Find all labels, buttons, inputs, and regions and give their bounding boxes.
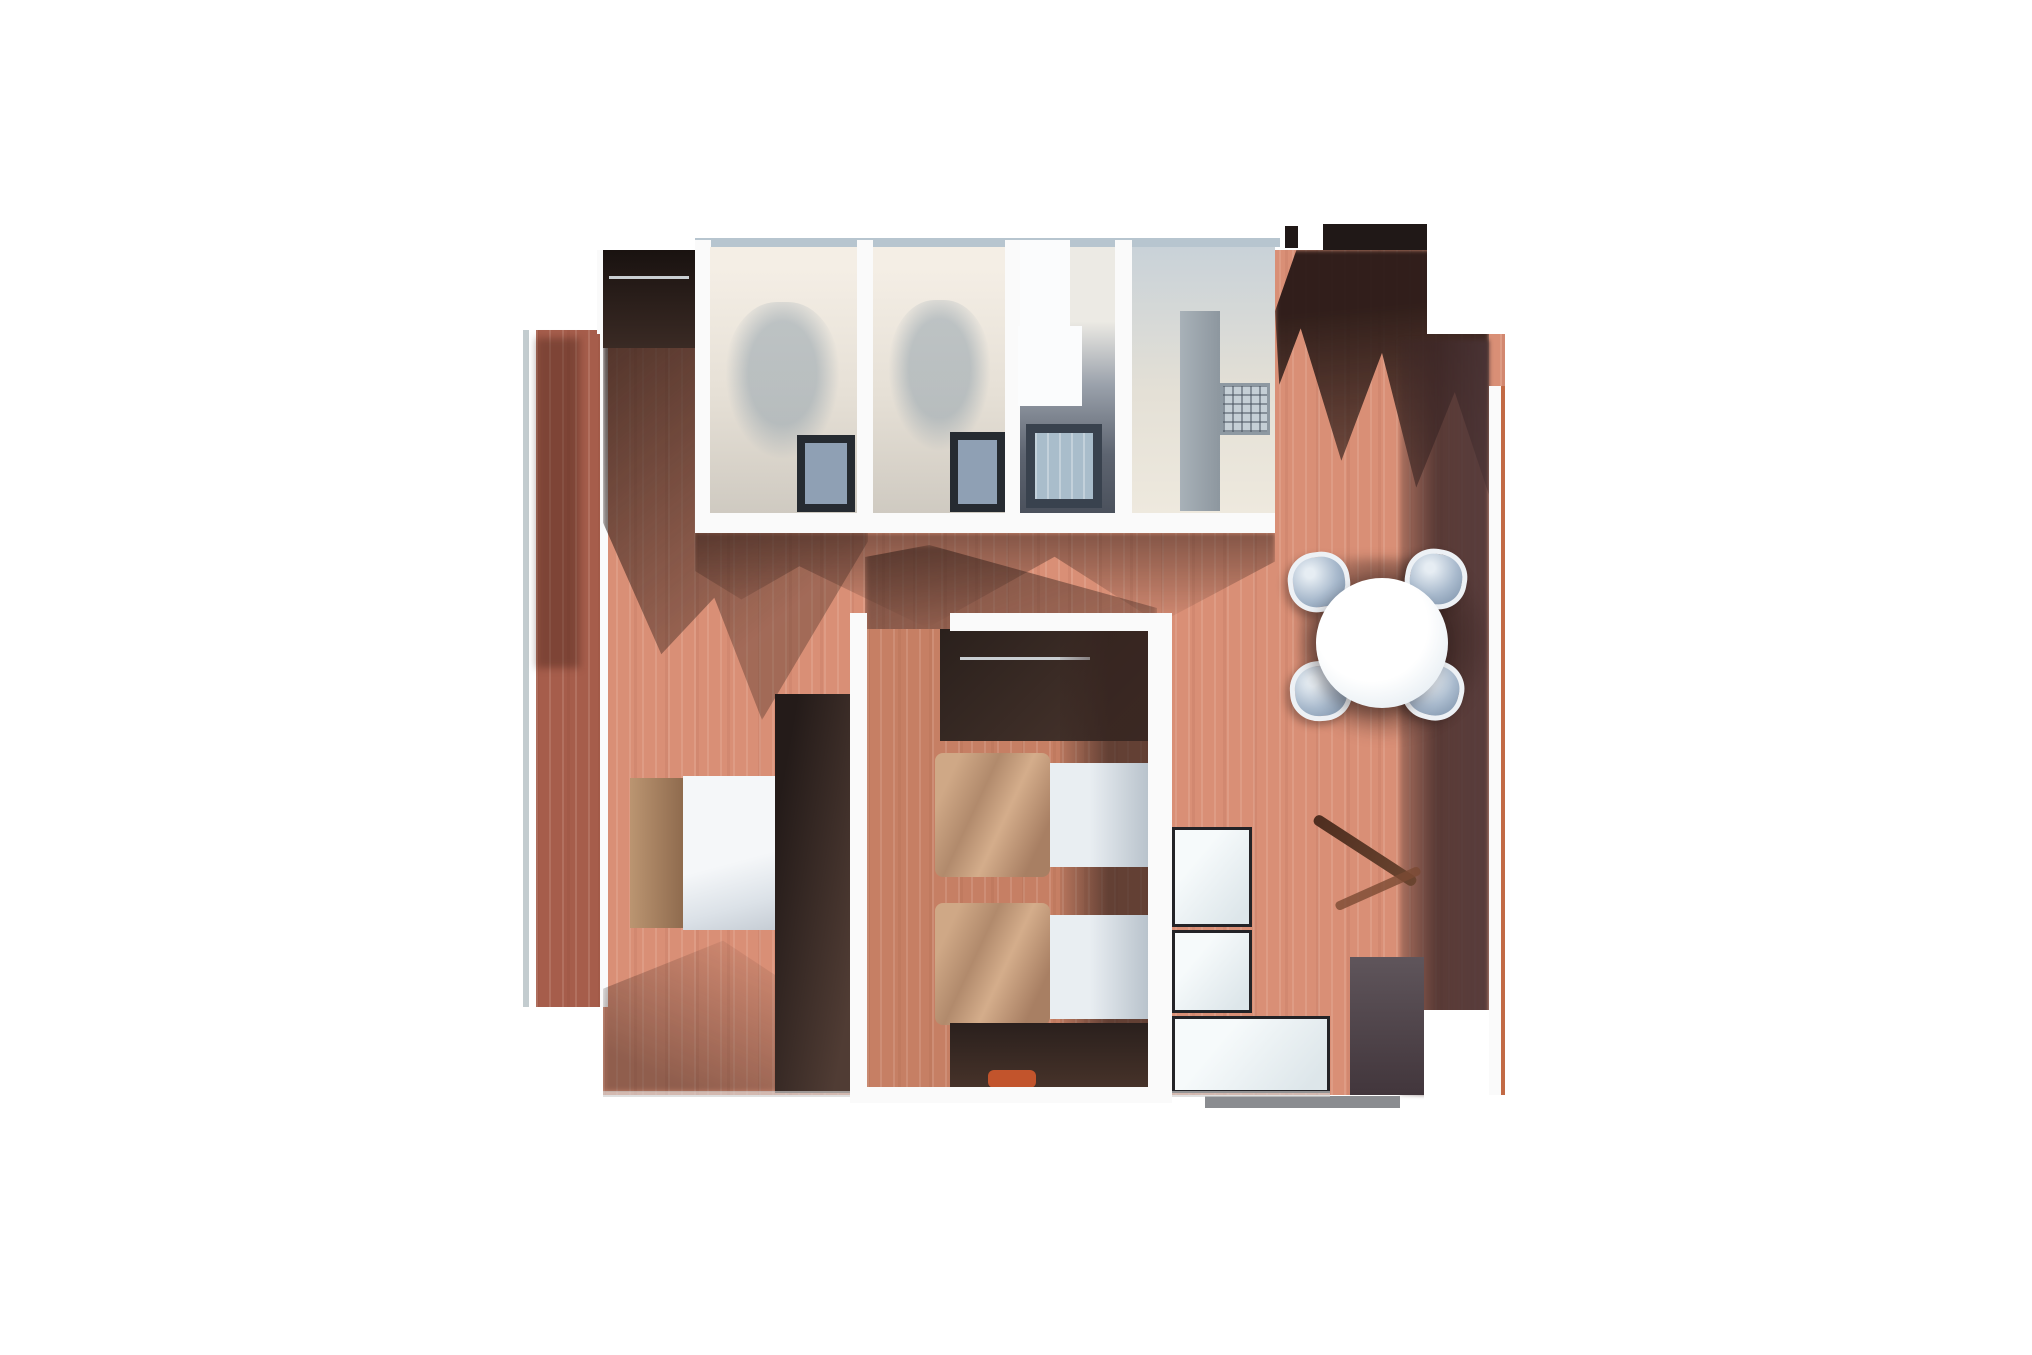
wc-fixture-top [1020, 240, 1070, 326]
dining-table [1316, 578, 1448, 708]
single-bed-2-blanket [935, 903, 1050, 1025]
wall-rooms-ab [857, 240, 873, 532]
wardrobe-rail-icon [609, 276, 689, 279]
bathroom-2-floor [873, 247, 1005, 513]
storage-unit-2 [1172, 930, 1252, 1013]
bedroom-middle-wall-bottom [850, 1087, 1172, 1103]
wardrobe-middle-bottom [950, 1023, 1148, 1087]
radiator-grille-icon [1220, 383, 1270, 435]
balcony-floor [536, 330, 600, 1007]
window-mat-2 [950, 432, 1005, 512]
double-bed-headboard [630, 778, 683, 928]
wardrobe-master-right [775, 694, 857, 1093]
wall-room-a-left [695, 240, 711, 532]
storage-unit-3 [1172, 1016, 1330, 1093]
outer-wall-right-accent-line [1501, 386, 1505, 1095]
wall-wc-kitchen [1115, 240, 1132, 532]
top-wall-dark-band [1323, 224, 1427, 250]
bathroom-1-floor [710, 247, 857, 513]
balcony-railing [523, 330, 529, 1007]
floor-plan-canvas [0, 0, 2032, 1355]
orange-object [988, 1070, 1036, 1088]
wc-window [1026, 424, 1102, 508]
top-right-white-recess [1427, 228, 1547, 334]
threshold-strip [1205, 1096, 1400, 1108]
bedroom-middle-wall-left [850, 613, 867, 1095]
kitchen-floor [1132, 247, 1275, 513]
wall-rooms-bottom [695, 513, 1275, 533]
storage-unit-1 [1172, 827, 1252, 927]
bedroom-middle-wall-right [1148, 613, 1172, 1095]
double-bed-duvet [683, 776, 785, 930]
bedroom-middle-wall-top [950, 613, 1170, 631]
window-mat-1 [797, 435, 855, 512]
window-band-top [695, 238, 1280, 247]
kitchen-cabinet [1180, 311, 1220, 511]
dark-sideboard [1350, 957, 1424, 1095]
bathtub-icon [888, 300, 991, 452]
single-bed-2-pillow-end [1050, 915, 1148, 1019]
wardrobe-top-left [603, 250, 695, 348]
single-bed-1-blanket [935, 753, 1050, 877]
balcony-shadow [536, 338, 580, 668]
wc-sink [1018, 326, 1082, 406]
single-bed-1-pillow-end [1050, 763, 1148, 867]
top-wall-dark-nub [1285, 226, 1298, 248]
